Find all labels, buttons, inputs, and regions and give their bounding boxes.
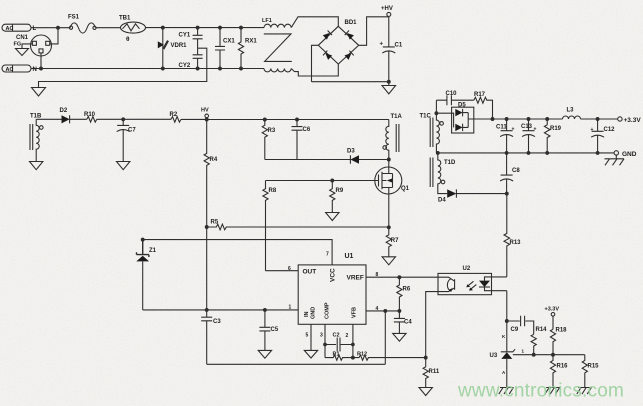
svg-text:C7: C7 [128,128,136,134]
svg-text:R19: R19 [550,126,562,132]
svg-text:FG: FG [14,42,22,48]
svg-text:R16: R16 [557,364,569,370]
svg-text:VDR1: VDR1 [171,43,188,49]
svg-text:L3: L3 [567,108,575,114]
svg-text:+3.3V: +3.3V [624,117,642,124]
svg-text:R6: R6 [403,287,411,293]
svg-text:+3.3V: +3.3V [545,307,560,313]
svg-text:Q1: Q1 [401,186,410,192]
svg-text:T1B: T1B [30,114,42,120]
svg-text:C2: C2 [333,333,340,339]
svg-text:+: + [512,127,515,133]
svg-text:CN1: CN1 [16,35,29,41]
svg-text:R14: R14 [536,327,548,333]
svg-text:+: + [591,127,594,133]
svg-text:2: 2 [346,333,349,339]
svg-text:C13: C13 [521,124,533,130]
svg-text:U3: U3 [490,353,498,359]
svg-text:5: 5 [306,333,309,339]
svg-text:R9: R9 [336,188,344,194]
svg-text:OUT: OUT [303,268,317,275]
svg-text:FS1: FS1 [68,15,80,21]
svg-text:Z1: Z1 [149,248,157,254]
svg-text:C6: C6 [303,127,311,133]
svg-text:TB1: TB1 [119,16,131,22]
svg-text:C5: C5 [271,327,279,333]
svg-text:R10: R10 [84,112,96,118]
svg-text:C8: C8 [512,168,520,174]
svg-text:3: 3 [320,333,323,339]
svg-text:LF1: LF1 [262,18,272,24]
svg-text:L: L [33,26,37,32]
svg-text:C9: C9 [511,327,519,333]
svg-text:CY2: CY2 [179,63,191,69]
svg-text:www.cntronics.com: www.cntronics.com [457,381,624,402]
svg-text:R8: R8 [269,188,277,194]
svg-text:1: 1 [289,305,292,311]
svg-text:T1A: T1A [391,114,403,120]
svg-text:RX1: RX1 [245,39,257,45]
svg-text:VCC: VCC [330,268,337,282]
svg-text:GND: GND [622,151,637,158]
svg-text:C1: C1 [395,43,403,49]
svg-text:R7: R7 [391,238,399,244]
svg-text:COMP: COMP [325,302,331,319]
svg-text:R4: R4 [210,157,218,163]
svg-text:R18: R18 [556,328,568,334]
svg-text:VFB: VFB [352,307,358,318]
svg-text:6: 6 [288,266,291,272]
svg-text:C11: C11 [496,125,507,131]
svg-text:VREF: VREF [347,275,364,282]
svg-text:C12: C12 [604,127,616,133]
svg-text:D3: D3 [347,149,355,155]
svg-text:AC: AC [6,26,14,32]
svg-text:N: N [33,67,37,73]
svg-text:AC: AC [6,67,14,73]
svg-text:R3: R3 [268,128,276,134]
svg-text:U1: U1 [345,253,354,260]
svg-text:C3: C3 [213,319,221,325]
svg-text:R11: R11 [429,369,440,375]
svg-text:+: + [534,127,537,133]
svg-text:R13: R13 [510,240,522,246]
svg-text:D2: D2 [60,108,68,114]
svg-text:HV: HV [201,108,209,114]
svg-text:C4: C4 [404,320,412,326]
svg-text:D4: D4 [438,198,446,204]
svg-text:R15: R15 [588,364,600,370]
svg-text:GND: GND [311,307,317,319]
svg-text:+HV: +HV [381,6,393,12]
svg-text:θ: θ [126,36,130,43]
svg-text:U2: U2 [463,266,471,272]
svg-text:BD1: BD1 [345,20,358,26]
svg-text:CY1: CY1 [179,33,191,39]
svg-text:T1D: T1D [444,160,456,166]
svg-text:7: 7 [326,252,329,258]
svg-text:CX1: CX1 [223,39,235,45]
svg-text:IN: IN [304,311,310,317]
